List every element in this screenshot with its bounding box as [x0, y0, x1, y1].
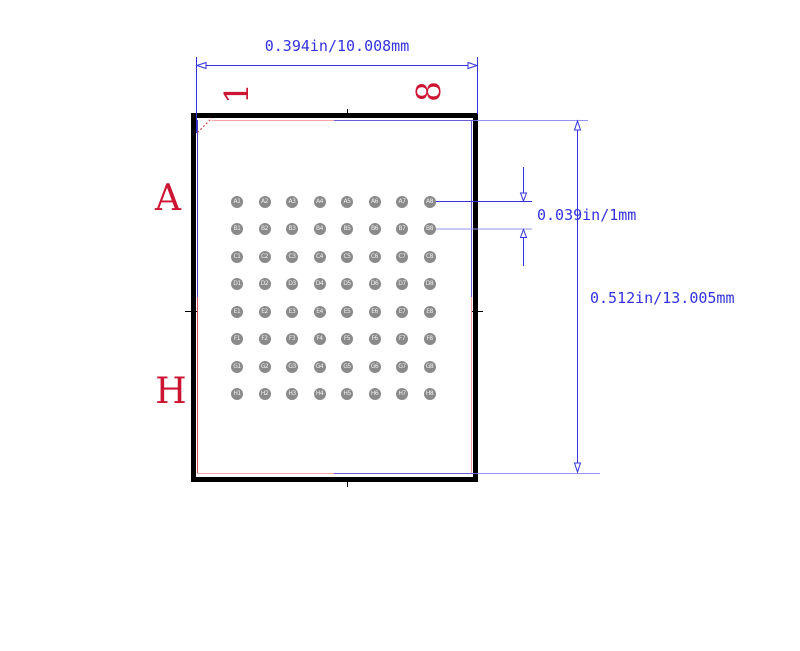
pad-D5: D5 — [341, 278, 353, 290]
pad-C1: C1 — [231, 251, 243, 263]
pad-G1: G1 — [231, 361, 243, 373]
pad-B3: B3 — [286, 223, 298, 235]
pad-F4: F4 — [314, 333, 326, 345]
pad-G6: G6 — [369, 361, 381, 373]
pad-H5: H5 — [341, 388, 353, 400]
pad-A5: A5 — [341, 196, 353, 208]
arrowhead-up — [521, 230, 527, 238]
pad-B7: B7 — [396, 223, 408, 235]
pad-C6: C6 — [369, 251, 381, 263]
pad-F1: F1 — [231, 333, 243, 345]
pad-A8: A8 — [424, 196, 436, 208]
pitch-dimension-text: 0.039in/1mm — [537, 207, 636, 223]
height-dimension — [575, 121, 581, 472]
pad-E4: E4 — [314, 306, 326, 318]
pad-A2: A2 — [259, 196, 271, 208]
row-label-h: H — [149, 370, 193, 414]
pad-H8: H8 — [424, 388, 436, 400]
pad-G7: G7 — [396, 361, 408, 373]
pad-E2: E2 — [259, 306, 271, 318]
column-label-8-text: 8 — [412, 81, 445, 102]
pad-H7: H7 — [396, 388, 408, 400]
pad-G3: G3 — [286, 361, 298, 373]
column-label-8: 8 — [406, 69, 450, 113]
pad-H4: H4 — [314, 388, 326, 400]
pitch-dimension — [432, 167, 532, 266]
row-label-h-text: H — [155, 374, 186, 410]
pad-C8: C8 — [424, 251, 436, 263]
row-label-a: A — [146, 177, 190, 221]
height-dimension-text: 0.512in/13.005mm — [590, 290, 735, 306]
pad-F7: F7 — [396, 333, 408, 345]
width-dimension-text: 0.394in/10.008mm — [196, 38, 478, 54]
pad-D1: D1 — [231, 278, 243, 290]
pad-E3: E3 — [286, 306, 298, 318]
pad-E1: E1 — [231, 306, 243, 318]
pad-D2: D2 — [259, 278, 271, 290]
pad-C2: C2 — [259, 251, 271, 263]
package-outline — [194, 116, 476, 480]
pad-D3: D3 — [286, 278, 298, 290]
pad-F5: F5 — [341, 333, 353, 345]
pad-A7: A7 — [396, 196, 408, 208]
pad-B1: B1 — [231, 223, 243, 235]
pad-A4: A4 — [314, 196, 326, 208]
pin1-chamfer-mark — [198, 118, 213, 133]
pad-C5: C5 — [341, 251, 353, 263]
pad-H3: H3 — [286, 388, 298, 400]
pad-B2: B2 — [259, 223, 271, 235]
pad-H1: H1 — [231, 388, 243, 400]
pad-F2: F2 — [259, 333, 271, 345]
pad-E7: E7 — [396, 306, 408, 318]
pad-F8: F8 — [424, 333, 436, 345]
pad-B8: B8 — [424, 223, 436, 235]
arrowhead-left — [197, 63, 206, 69]
package-footprint-drawing: 0.394in/10.008mm 0.039in/1mm 0.512in/13.… — [0, 0, 800, 651]
pad-D8: D8 — [424, 278, 436, 290]
pad-D7: D7 — [396, 278, 408, 290]
arrowhead-right — [468, 63, 477, 69]
column-label-1-text: 1 — [220, 83, 253, 104]
pad-D6: D6 — [369, 278, 381, 290]
drawing-lines — [0, 0, 800, 651]
pad-B6: B6 — [369, 223, 381, 235]
package-inner-edges — [197, 120, 600, 474]
edge-center-ticks — [185, 109, 483, 487]
pad-E8: E8 — [424, 306, 436, 318]
pad-G2: G2 — [259, 361, 271, 373]
pad-E6: E6 — [369, 306, 381, 318]
pad-E5: E5 — [341, 306, 353, 318]
pad-G8: G8 — [424, 361, 436, 373]
pad-B4: B4 — [314, 223, 326, 235]
pad-H6: H6 — [369, 388, 381, 400]
pad-F3: F3 — [286, 333, 298, 345]
pad-A6: A6 — [369, 196, 381, 208]
pad-F6: F6 — [369, 333, 381, 345]
pad-H2: H2 — [259, 388, 271, 400]
pad-C3: C3 — [286, 251, 298, 263]
pad-A3: A3 — [286, 196, 298, 208]
arrowhead-down — [521, 193, 527, 201]
pad-B5: B5 — [341, 223, 353, 235]
pad-C7: C7 — [396, 251, 408, 263]
pad-A1: A1 — [231, 196, 243, 208]
pad-C4: C4 — [314, 251, 326, 263]
arrowhead-top — [575, 121, 581, 130]
arrowhead-bottom — [575, 463, 581, 472]
row-label-a-text: A — [155, 181, 181, 217]
column-label-1: 1 — [214, 71, 258, 115]
pad-G5: G5 — [341, 361, 353, 373]
pad-G4: G4 — [314, 361, 326, 373]
pad-D4: D4 — [314, 278, 326, 290]
